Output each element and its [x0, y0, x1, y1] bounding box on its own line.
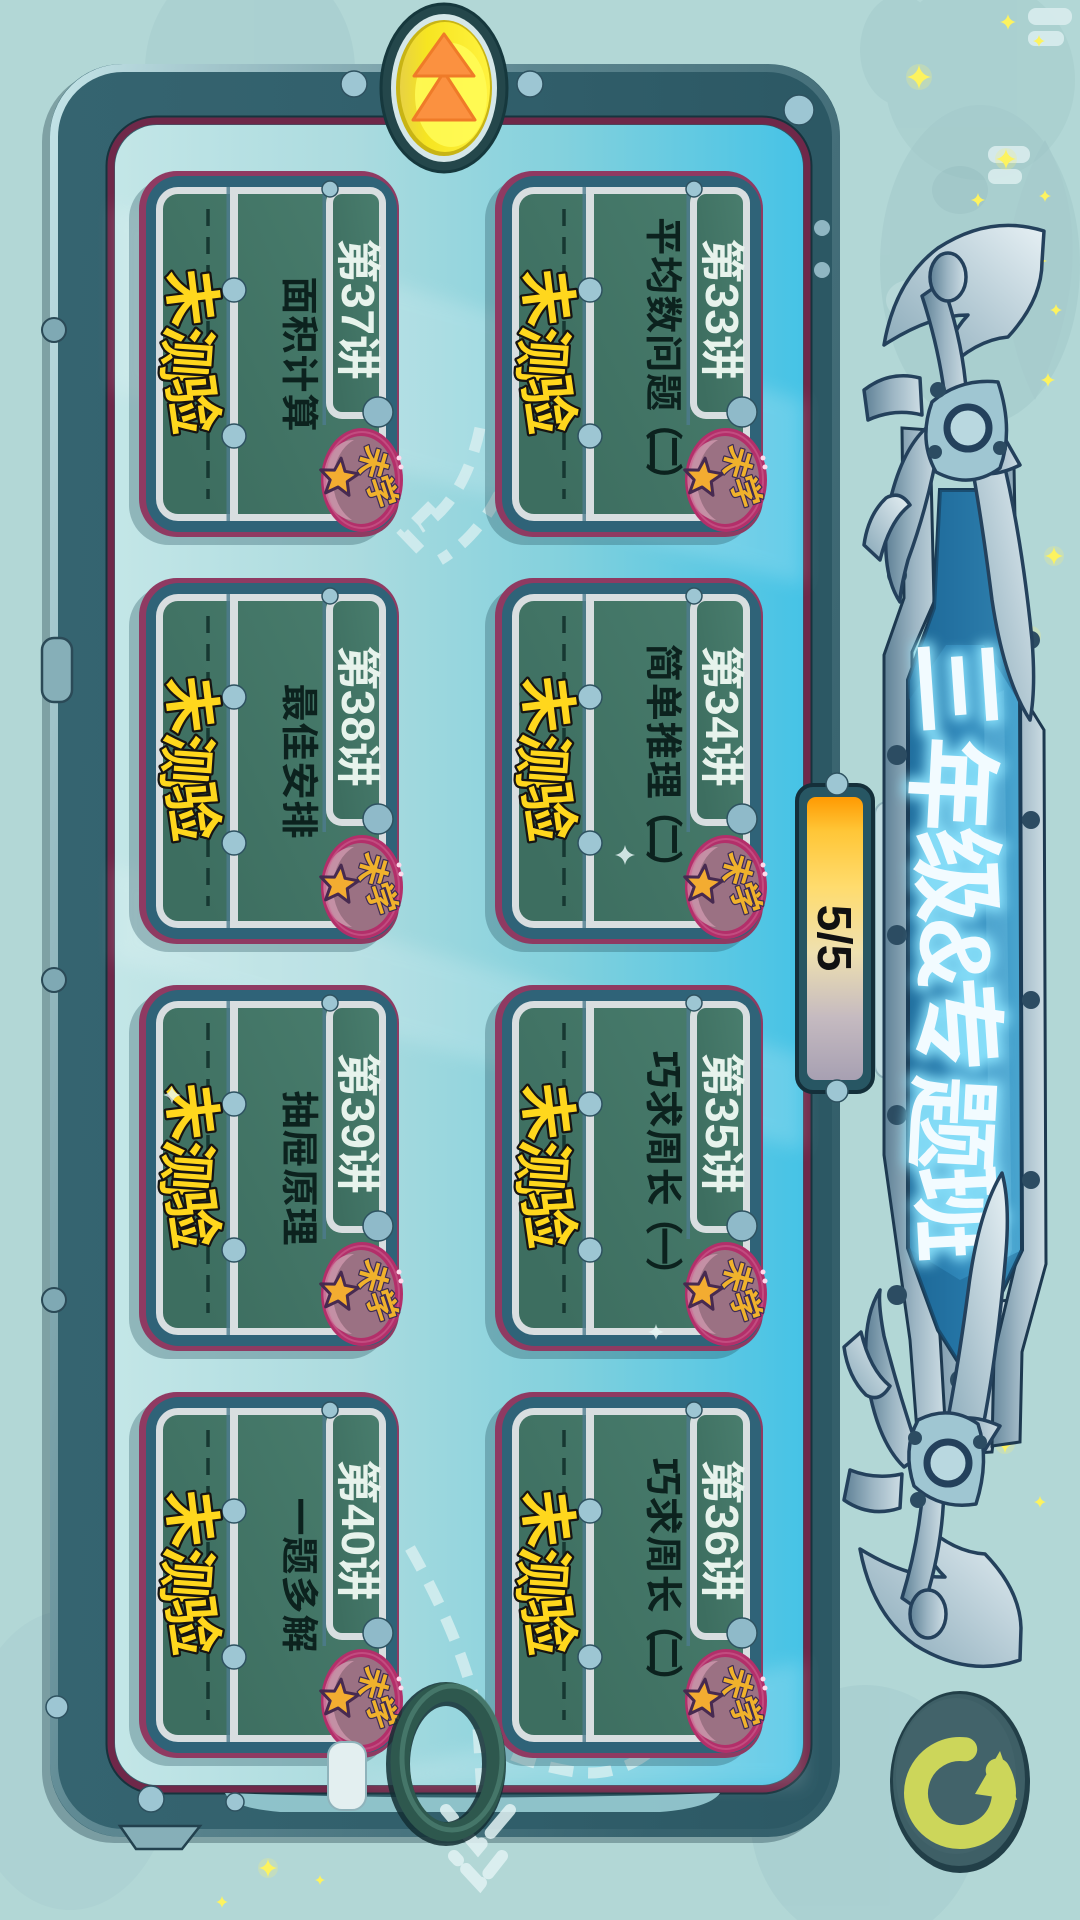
svg-text:0: 0: [332, 1530, 384, 1556]
svg-text:4: 4: [332, 1504, 384, 1530]
svg-text:9: 9: [332, 1123, 384, 1149]
svg-text:5: 5: [696, 1123, 748, 1149]
svg-text:3: 3: [696, 283, 748, 309]
svg-text:3: 3: [696, 690, 748, 716]
svg-text:3: 3: [696, 1504, 748, 1530]
svg-text:3: 3: [332, 1097, 384, 1123]
svg-text:&: &: [895, 914, 1014, 995]
svg-text:8: 8: [332, 716, 384, 742]
svg-text:3: 3: [696, 309, 748, 335]
svg-text:4: 4: [696, 716, 748, 742]
svg-text:6: 6: [696, 1530, 748, 1556]
svg-text:3: 3: [332, 283, 384, 309]
svg-text:3: 3: [696, 1097, 748, 1123]
svg-text:3: 3: [332, 690, 384, 716]
svg-text:5/5: 5/5: [807, 905, 860, 972]
svg-text:7: 7: [332, 309, 384, 335]
